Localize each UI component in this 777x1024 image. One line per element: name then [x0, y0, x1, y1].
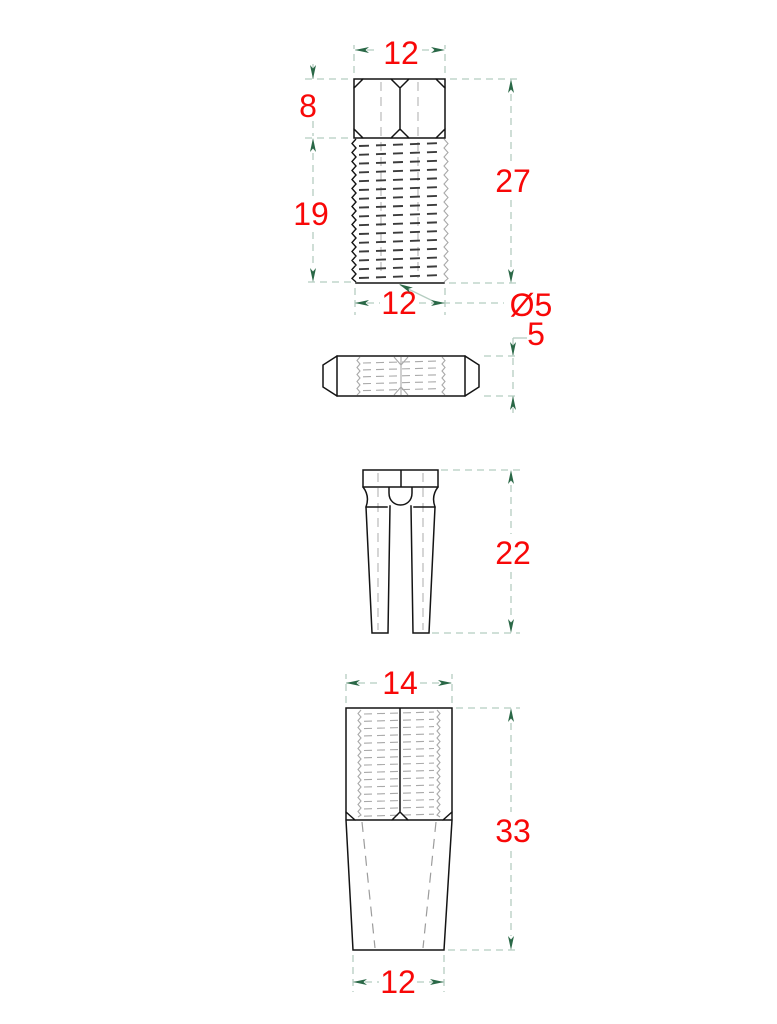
hex-head-outline — [354, 79, 445, 138]
thread-line — [359, 205, 442, 208]
thread-line — [359, 196, 442, 199]
thread-line — [359, 222, 442, 225]
dimension-arrowhead — [355, 300, 369, 306]
thread-line — [359, 266, 442, 269]
drawing-canvas: 12 8 19 27 12 Ø5 5 22 — [0, 0, 777, 1024]
thread-line — [364, 792, 434, 794]
dimension-arrowhead — [508, 470, 514, 484]
thread-line — [359, 249, 442, 252]
dimension-arrowhead — [346, 680, 360, 686]
thread-zigzag — [442, 357, 445, 395]
thread-zigzag — [444, 139, 448, 282]
sleeve-dimension-lines — [346, 674, 520, 992]
thread-line — [364, 778, 434, 780]
thread-line — [364, 734, 434, 736]
thread-line — [364, 807, 434, 809]
thread-line — [359, 152, 442, 155]
dim-side-height: 5 — [527, 316, 545, 352]
thread-line — [364, 741, 434, 743]
thread-line — [359, 187, 442, 190]
stud-front-threads — [352, 139, 448, 282]
thread-line — [359, 161, 442, 164]
dim-stud-top-width: 12 — [383, 35, 419, 71]
thread-line — [364, 749, 434, 751]
dim-sleeve-top-width: 14 — [382, 665, 418, 701]
thread-line — [364, 785, 434, 787]
thread-line — [364, 814, 434, 816]
dim-thread-length: 19 — [293, 196, 329, 232]
thread-line — [359, 231, 442, 234]
thread-line — [359, 257, 442, 260]
dim-stud-bottom-width: 12 — [381, 285, 417, 321]
thread-line — [359, 213, 442, 216]
thread-line — [364, 719, 434, 721]
stud-front-dimensions: 12 8 19 27 12 Ø5 — [293, 35, 552, 323]
thread-line — [364, 763, 434, 765]
dimension-arrowhead — [510, 396, 516, 410]
thread-zigzag — [437, 710, 440, 817]
thread-line — [359, 169, 442, 172]
stud-front-view: 12 8 19 27 12 Ø5 — [293, 35, 552, 323]
dimension-arrowhead — [508, 269, 514, 283]
stud-side-view: 5 — [323, 316, 545, 413]
dimension-arrowhead — [431, 47, 445, 53]
sleeve-outline — [346, 708, 452, 950]
dimension-arrowhead — [353, 979, 367, 985]
stud-side-dimensions: 5 — [484, 316, 545, 413]
dimension-arrowhead — [508, 619, 514, 633]
thread-line — [359, 240, 442, 243]
dim-wedge-length: 22 — [495, 535, 531, 571]
thread-line — [364, 712, 434, 714]
wedge-outline — [363, 470, 438, 633]
thread-line — [359, 178, 442, 181]
dim-sleeve-bottom-width: 12 — [380, 964, 416, 1000]
dimension-arrowhead — [508, 708, 514, 722]
thread-line — [364, 727, 434, 729]
thread-zigzag — [352, 139, 356, 282]
dim-head-height: 8 — [299, 88, 317, 124]
wedge-centerlines — [378, 473, 423, 630]
wedge-view: 22 — [363, 470, 531, 633]
wedge-dimensions: 22 — [432, 470, 531, 633]
technical-drawing: 12 8 19 27 12 Ø5 5 22 — [0, 0, 777, 1024]
thread-line — [364, 770, 434, 772]
thread-line — [364, 800, 434, 802]
thread-zigzag — [357, 357, 360, 395]
thread-zigzag — [358, 710, 361, 817]
sleeve-view: 14 33 12 — [346, 665, 531, 1000]
sleeve-hidden-bore-lines — [362, 822, 436, 948]
dimension-arrowhead — [438, 680, 452, 686]
dim-total-length: 27 — [495, 163, 531, 199]
dimension-arrowhead — [310, 268, 316, 282]
thread-line — [359, 143, 442, 146]
thread-line — [364, 756, 434, 758]
dimension-arrowhead — [508, 936, 514, 950]
stud-side-dimension-lines — [484, 338, 520, 413]
sleeve-threads — [358, 710, 440, 817]
dim-sleeve-length: 33 — [495, 813, 531, 849]
dimension-arrowhead — [355, 47, 369, 53]
dimension-arrowhead — [310, 138, 316, 152]
thread-line — [359, 275, 442, 278]
dimension-arrowhead — [508, 79, 514, 93]
